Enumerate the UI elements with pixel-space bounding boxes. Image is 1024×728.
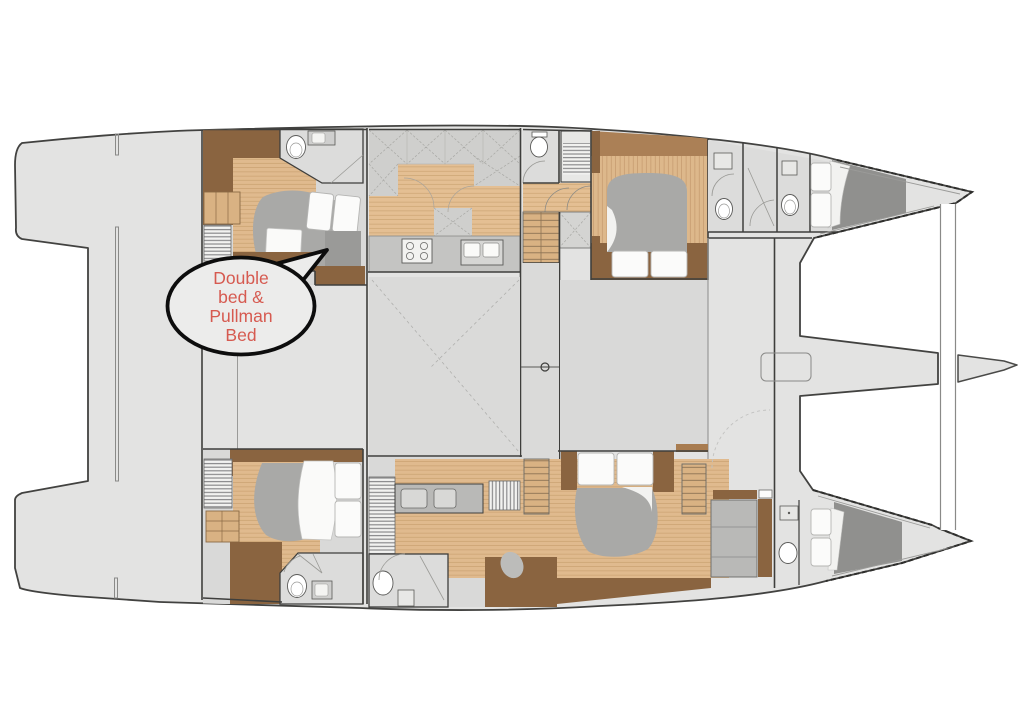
svg-text:Double: Double bbox=[213, 268, 268, 288]
svg-text:bed &: bed & bbox=[218, 287, 264, 307]
svg-text:Bed: Bed bbox=[225, 325, 256, 345]
svg-text:Pullman: Pullman bbox=[209, 306, 272, 326]
